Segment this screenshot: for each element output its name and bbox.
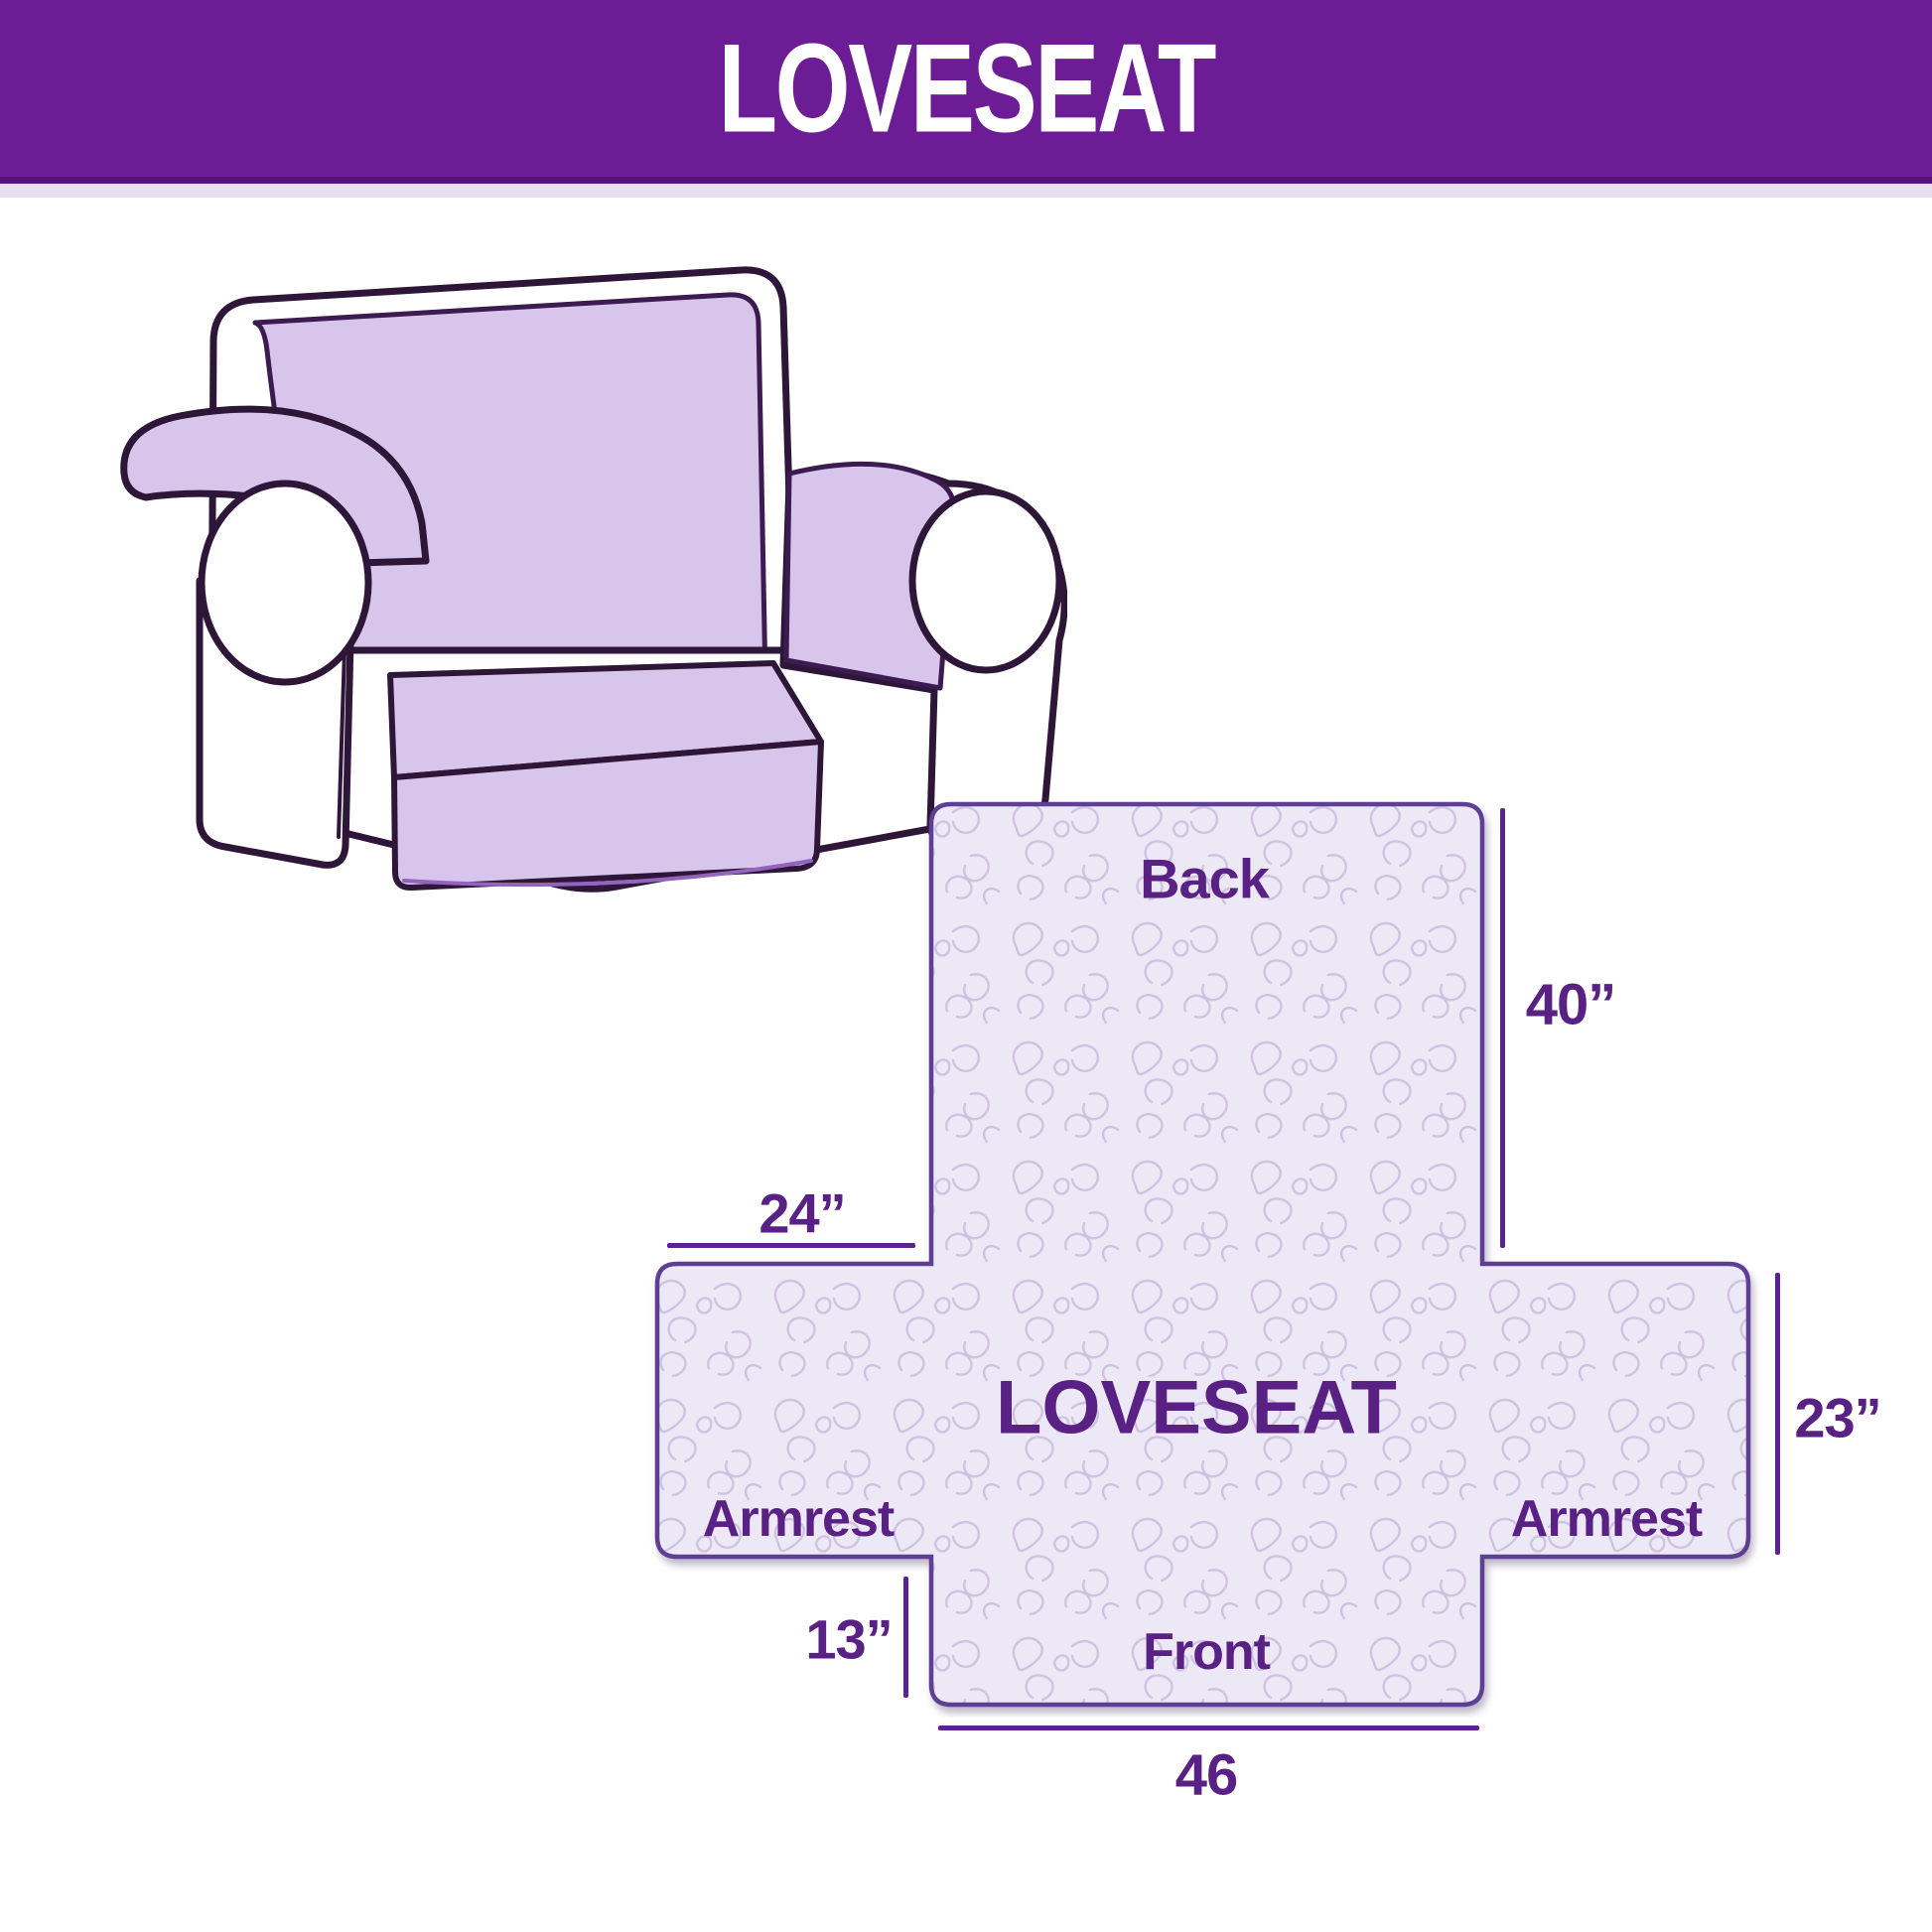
label-armrest-right: Armrest xyxy=(1511,1489,1702,1549)
dimension-back-height: 40” xyxy=(1526,972,1616,1038)
cover-template-diagram xyxy=(645,794,1797,1718)
dimension-line-side-height xyxy=(1775,1273,1780,1555)
infographic-page: LOVESEAT xyxy=(0,0,1932,1932)
dimension-line-front-width xyxy=(938,1725,1479,1730)
label-front: Front xyxy=(1143,1622,1270,1682)
dimension-line-back-height xyxy=(1500,808,1505,1248)
page-title: LOVESEAT xyxy=(718,16,1214,161)
dimension-front-height: 13” xyxy=(805,1607,892,1672)
label-armrest-left: Armrest xyxy=(703,1489,894,1549)
header-bar: LOVESEAT xyxy=(0,0,1932,184)
sofa-right-arm-roll xyxy=(912,491,1059,670)
dimension-front-width: 46 xyxy=(1175,1742,1238,1809)
dimension-back-width: 24” xyxy=(759,1181,845,1246)
label-back: Back xyxy=(1140,847,1269,911)
cover-cross-shape xyxy=(657,804,1748,1705)
dimension-line-front-height xyxy=(903,1577,908,1698)
dimension-side-height: 23” xyxy=(1794,1386,1880,1450)
label-loveseat: LOVESEAT xyxy=(996,1365,1397,1451)
cover-cross-svg xyxy=(645,794,1797,1718)
